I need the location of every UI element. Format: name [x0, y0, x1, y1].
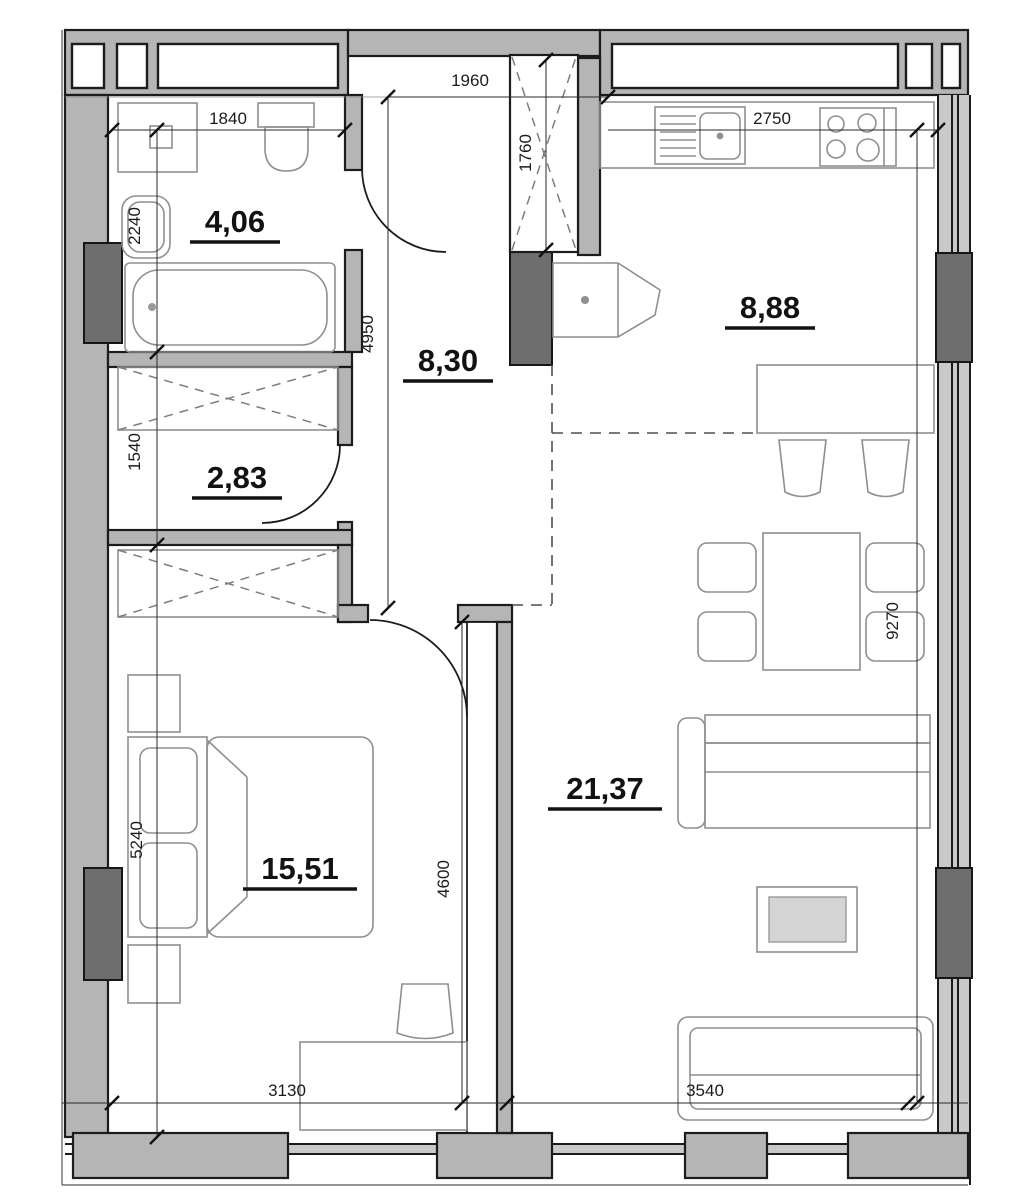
- desk: [300, 984, 467, 1130]
- floor-plan-sheet: 4,06 8,30 2,83 8,88 15,51 21,37 1840 196…: [0, 0, 1024, 1200]
- bed: [128, 737, 373, 937]
- door-arcs: [262, 168, 467, 717]
- sofa-lower: [678, 1017, 933, 1120]
- bedroom-furniture: [128, 675, 467, 1130]
- dim-bathroom-depth: 2240: [125, 207, 144, 245]
- dim-dressing-room-depth: 1540: [125, 433, 144, 471]
- zone-boundaries: [512, 365, 757, 605]
- dim-bedroom-wall-length: 4600: [434, 860, 453, 898]
- room-area-bedroom: 15,51: [261, 851, 339, 886]
- dim-hallway-length: 4950: [358, 315, 377, 353]
- room-area-dressing-room: 2,83: [207, 460, 267, 495]
- living-room-furniture: [678, 715, 933, 1120]
- dim-bedroom-depth: 5240: [127, 821, 146, 859]
- dim-hall-closet-depth: 1760: [516, 134, 535, 172]
- sofa-upper: [678, 715, 930, 828]
- kitchen-sink: [655, 107, 745, 164]
- room-area-living-room: 21,37: [566, 771, 644, 806]
- dim-living-room-width: 3540: [686, 1081, 724, 1100]
- dim-kitchen-width: 2750: [753, 109, 791, 128]
- kitchen-stove: [820, 108, 896, 166]
- tv-stand: [757, 887, 857, 952]
- dim-bedroom-width: 3130: [268, 1081, 306, 1100]
- room-area-kitchen: 8,88: [740, 290, 800, 325]
- bottom-wall: [65, 1133, 968, 1178]
- floor-plan-canvas: 4,06 8,30 2,83 8,88 15,51 21,37 1840 196…: [0, 0, 1024, 1200]
- water-heater: [553, 263, 660, 337]
- dim-bathroom-width: 1840: [209, 109, 247, 128]
- dim-right-side-length: 9270: [883, 602, 902, 640]
- dim-entrance-niche-width: 1960: [451, 71, 489, 90]
- room-area-bathroom: 4,06: [205, 204, 265, 239]
- interior-walls: [108, 55, 600, 1133]
- room-area-hallway: 8,30: [418, 343, 478, 378]
